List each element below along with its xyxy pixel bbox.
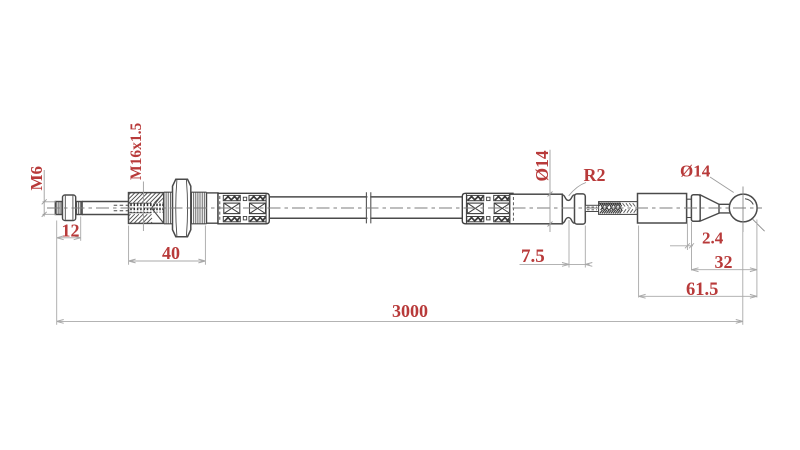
svg-text:12: 12 bbox=[62, 221, 80, 241]
svg-text:M16x1.5: M16x1.5 bbox=[128, 122, 145, 180]
svg-text:61.5: 61.5 bbox=[686, 280, 718, 300]
svg-text:7.5: 7.5 bbox=[521, 246, 545, 267]
svg-text:32: 32 bbox=[715, 252, 733, 272]
svg-text:40: 40 bbox=[162, 243, 180, 263]
svg-text:Ø14: Ø14 bbox=[680, 162, 711, 181]
svg-text:3000: 3000 bbox=[392, 301, 428, 321]
svg-text:Ø14: Ø14 bbox=[532, 150, 552, 181]
svg-text:2.4: 2.4 bbox=[702, 229, 724, 248]
svg-text:R2: R2 bbox=[584, 165, 606, 185]
svg-text:M6: M6 bbox=[27, 166, 46, 191]
